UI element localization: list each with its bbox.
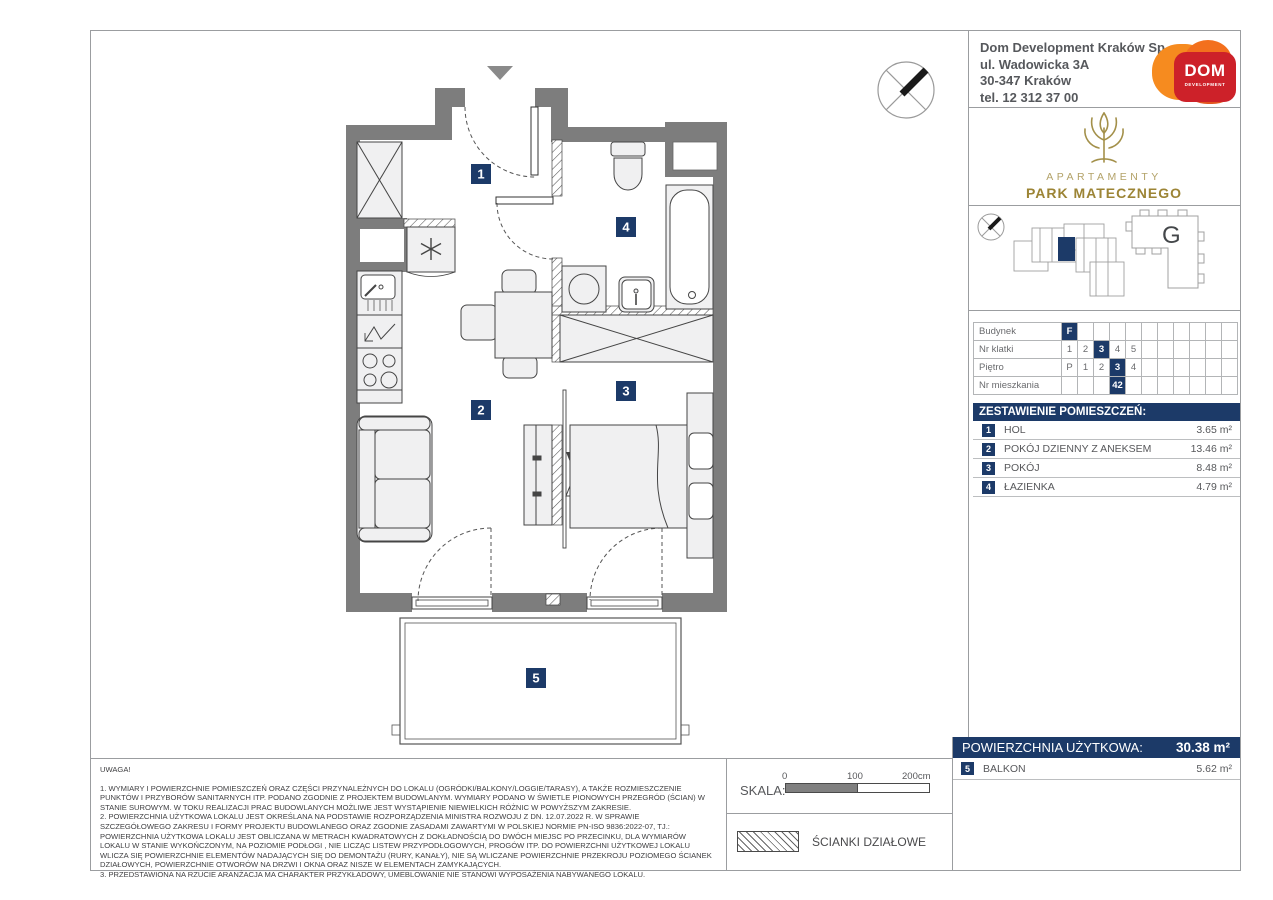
cell: 2 — [1078, 341, 1094, 359]
cell: 4 — [1110, 341, 1126, 359]
brand-line1: APARTAMENTY — [968, 171, 1240, 183]
entrance-arrow-icon — [487, 66, 513, 80]
kitchen-sink — [357, 271, 402, 315]
cell — [1206, 341, 1222, 359]
row-label: Budynek — [974, 323, 1062, 341]
dining-table — [461, 270, 552, 378]
cell — [1158, 341, 1174, 359]
row-label: Piętro — [974, 359, 1062, 377]
cell: 5 — [1126, 341, 1142, 359]
sofa — [357, 416, 432, 542]
room-label-bath: 4 — [622, 220, 630, 235]
cell — [1094, 377, 1110, 395]
cell — [1174, 341, 1190, 359]
floor-plan-drawing: 1 4 2 3 5 — [90, 30, 968, 758]
room-area: 4.79 m² — [1196, 481, 1232, 493]
bathroom-door — [496, 197, 553, 259]
table-row-pietro: Piętro P 1 2 3 4 — [974, 359, 1238, 377]
rooms-list-row: 3 POKÓJ 8.48 m² — [973, 459, 1240, 478]
installation-shaft — [673, 142, 717, 170]
scale-tick-0: 0 — [782, 771, 787, 782]
scale-bar-filled — [785, 783, 858, 793]
bedroom-wardrobe-right — [687, 393, 713, 558]
usable-area-label: POWIERZCHNIA UŻYTKOWA: — [962, 740, 1143, 755]
summary-box-divider — [952, 737, 953, 870]
cell — [1222, 377, 1238, 395]
cell: F — [1062, 323, 1078, 341]
scale-tick-200: 200cm — [902, 771, 931, 782]
sliding-wardrobe — [524, 425, 552, 525]
cell — [1190, 341, 1206, 359]
room-number-badge: 3 — [982, 462, 995, 475]
note-2: 2. POWIERZCHNIA UŻYTKOWA LOKALU JEST OKR… — [100, 812, 712, 870]
dom-development-logo: DOM DEVELOPMENT — [1152, 40, 1238, 106]
cell: 4 — [1126, 359, 1142, 377]
dishwasher — [357, 315, 402, 348]
room-label-room: 3 — [622, 384, 629, 399]
cell — [1094, 323, 1110, 341]
cell — [1158, 323, 1174, 341]
room-number-badge: 1 — [982, 424, 995, 437]
brand-line2: PARK MATECZNEGO — [968, 185, 1240, 201]
cell — [1174, 377, 1190, 395]
logo-red-square: DOM DEVELOPMENT — [1174, 52, 1236, 102]
table-row-budynek: Budynek F — [974, 323, 1238, 341]
rooms-list-row: 1 HOL 3.65 m² — [973, 421, 1240, 440]
scale-bar-empty — [857, 783, 930, 793]
footer-top-line — [90, 758, 952, 759]
building-g-footprint: G — [1126, 210, 1204, 288]
scale-tick-100: 100 — [847, 771, 863, 782]
kitchen-niche — [360, 229, 404, 262]
stove — [357, 348, 402, 403]
room-label-hol: 1 — [477, 167, 484, 182]
balcony-area: 5.62 m² — [1196, 763, 1232, 775]
room-label-living: 2 — [477, 403, 484, 418]
cell: 1 — [1062, 341, 1078, 359]
cell — [1158, 377, 1174, 395]
bathtub — [666, 185, 713, 309]
cell — [1174, 359, 1190, 377]
room-name: ŁAZIENKA — [1004, 481, 1196, 493]
cell — [1126, 377, 1142, 395]
room-area: 13.46 m² — [1191, 443, 1232, 455]
cell: 42 — [1110, 377, 1126, 395]
table-row-klatka: Nr klatki 1 2 3 4 5 — [974, 341, 1238, 359]
cell: 1 — [1078, 359, 1094, 377]
cell — [1126, 323, 1142, 341]
cell — [1222, 341, 1238, 359]
rooms-list-header: ZESTAWIENIE POMIESZCZEŃ: — [973, 403, 1240, 421]
footer-divider-1 — [726, 758, 727, 870]
cell — [1078, 323, 1094, 341]
row-label: Nr klatki — [974, 341, 1062, 359]
cell — [1206, 377, 1222, 395]
washing-machine — [562, 266, 606, 312]
floorplan-sheet: 1 4 2 3 5 Dom Development Kraków Sp. z o… — [0, 0, 1273, 900]
room-area: 3.65 m² — [1196, 424, 1232, 436]
room-name: POKÓJ — [1004, 462, 1196, 474]
cell — [1206, 323, 1222, 341]
unit-location-table: Budynek F Nr klatki 1 2 3 4 5 — [973, 322, 1238, 395]
cell: 3 — [1094, 341, 1110, 359]
cell — [1206, 359, 1222, 377]
notes-title: UWAGA! — [100, 765, 712, 775]
rooms-list-row: 2 POKÓJ DZIENNY Z ANEKSEM 13.46 m² — [973, 440, 1240, 459]
partition-legend-label: ŚCIANKI DZIAŁOWE — [812, 835, 926, 849]
note-1: 1. WYMIARY I POWIERZCHNIE POMIESZCZEŃ OR… — [100, 784, 712, 813]
sidebar-line-2 — [968, 205, 1240, 206]
sidebar-line-3 — [968, 310, 1240, 311]
cell — [1174, 323, 1190, 341]
cell — [1190, 359, 1206, 377]
legal-notes: UWAGA! 1. WYMIARY I POWIERZCHNIE POMIESZ… — [100, 765, 712, 880]
cell — [1078, 377, 1094, 395]
cell — [1190, 377, 1206, 395]
room-area: 8.48 m² — [1196, 462, 1232, 474]
cell — [1142, 377, 1158, 395]
cell: P — [1062, 359, 1078, 377]
logo-title: DOM — [1174, 61, 1236, 81]
room-name: HOL — [1004, 424, 1196, 436]
building-g-label: G — [1162, 222, 1181, 249]
usable-area-value: 30.38 m² — [1176, 740, 1230, 755]
footer-divider-2 — [726, 813, 952, 814]
building-f-footprint — [1014, 224, 1124, 296]
cell — [1142, 323, 1158, 341]
cell: 3 — [1110, 359, 1126, 377]
site-locator-diagram: G — [968, 207, 1240, 310]
bathroom-sink — [619, 277, 654, 312]
cell: 2 — [1094, 359, 1110, 377]
brand-logo: APARTAMENTY PARK MATECZNEGO — [968, 110, 1240, 201]
balcony-door-right — [587, 528, 662, 609]
cell — [1222, 359, 1238, 377]
north-compass-icon — [878, 62, 934, 118]
room-name: POKÓJ DZIENNY Z ANEKSEM — [1004, 443, 1191, 455]
cell — [1222, 323, 1238, 341]
cell — [1190, 323, 1206, 341]
highlighted-unit — [1058, 237, 1075, 261]
balcony-row: 5 BALKON 5.62 m² — [952, 758, 1240, 780]
cell — [1142, 359, 1158, 377]
cell — [1062, 377, 1078, 395]
fridge — [407, 227, 455, 277]
site-compass-icon — [978, 214, 1004, 240]
scale-label: SKALA: — [740, 783, 786, 798]
sidebar-line-1 — [968, 107, 1240, 108]
table-row-mieszkanie: Nr mieszkania 42 — [974, 377, 1238, 395]
cell — [1158, 359, 1174, 377]
toilet — [611, 142, 645, 190]
partition-hatch-swatch — [737, 831, 799, 852]
balcony-name: BALKON — [983, 763, 1196, 775]
cell — [1110, 323, 1126, 341]
wardrobe-built-in — [560, 315, 713, 362]
row-label: Nr mieszkania — [974, 377, 1062, 395]
note-3: 3. PRZEDSTAWIONA NA RZUCIE ARANŻACJA MA … — [100, 870, 712, 880]
room-number-badge: 2 — [982, 443, 995, 456]
room-number-badge: 4 — [982, 481, 995, 494]
kitchen-tall-cabinet — [357, 142, 402, 218]
tree-icon — [1072, 110, 1136, 164]
logo-subtitle: DEVELOPMENT — [1174, 82, 1236, 87]
cell — [1142, 341, 1158, 359]
room-label-balcony: 5 — [532, 671, 539, 686]
balcony-number-badge: 5 — [961, 762, 974, 775]
usable-area-bar: POWIERZCHNIA UŻYTKOWA: 30.38 m² — [952, 737, 1240, 758]
rooms-list-row: 4 ŁAZIENKA 4.79 m² — [973, 478, 1240, 497]
